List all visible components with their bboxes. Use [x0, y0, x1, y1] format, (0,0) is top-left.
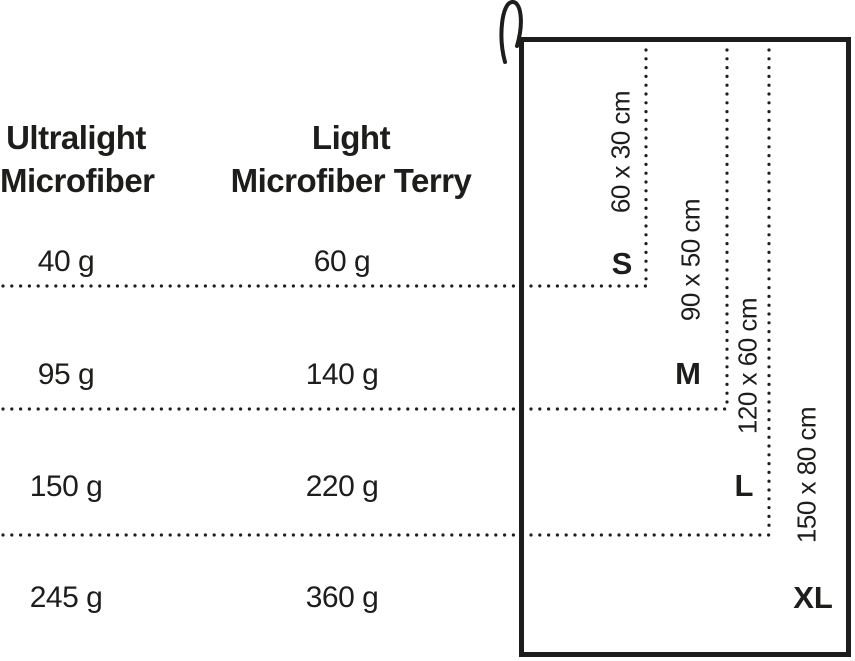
column-header-line: Ultralight [0, 116, 152, 159]
weight-xl-ultralight: 245 g [30, 581, 103, 615]
dimensions-s: 60 x 30 cm [606, 91, 637, 213]
weight-l-terry: 220 g [306, 470, 379, 504]
hang-loop-icon [501, 2, 520, 62]
size-chart: Ultralight Microfiber Light Microfiber T… [0, 0, 855, 661]
column-header-line: Microfiber [0, 159, 152, 202]
weight-xl-terry: 360 g [306, 581, 379, 615]
column-header-line: Light [226, 116, 476, 159]
weight-m-ultralight: 95 g [38, 358, 94, 392]
size-label-m: M [675, 356, 701, 392]
dimensions-xl: 150 x 80 cm [792, 407, 823, 543]
size-label-xl: XL [793, 580, 833, 616]
towel-diagram [0, 0, 855, 661]
column-header-terry: Light Microfiber Terry [226, 116, 476, 202]
size-label-l: L [735, 468, 754, 504]
weight-m-terry: 140 g [306, 358, 379, 392]
weight-s-ultralight: 40 g [38, 245, 94, 279]
weight-l-ultralight: 150 g [30, 470, 103, 504]
column-header-ultralight: Ultralight Microfiber [0, 116, 152, 202]
dimensions-m: 90 x 50 cm [676, 199, 707, 321]
dimensions-l: 120 x 60 cm [733, 298, 764, 434]
weight-s-terry: 60 g [314, 245, 370, 279]
column-header-line: Microfiber Terry [226, 159, 476, 202]
towel-outline [522, 40, 849, 655]
size-label-s: S [612, 246, 633, 282]
